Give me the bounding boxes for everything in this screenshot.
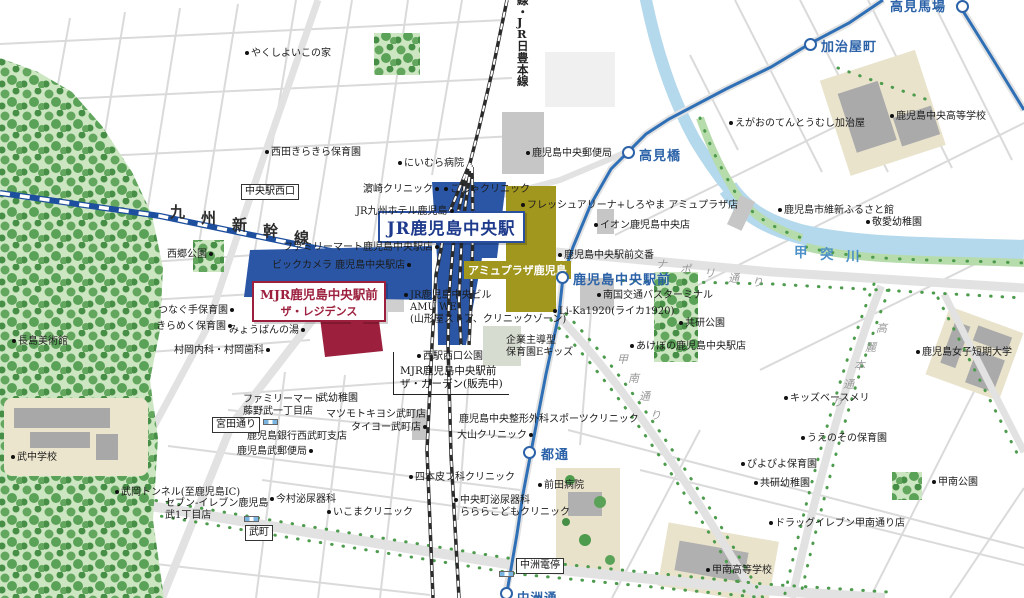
poi-label: JR九州ホテル鹿児島 bbox=[356, 206, 456, 218]
poi-dot bbox=[301, 328, 305, 332]
poi-dot bbox=[398, 161, 402, 165]
tram-stop-label: 高見橋 bbox=[639, 145, 681, 164]
tram-stop-circle bbox=[804, 38, 817, 51]
poi-dot bbox=[423, 425, 427, 429]
poi-dot bbox=[417, 354, 421, 358]
poi-dot bbox=[729, 121, 733, 125]
tram-stop-circle bbox=[956, 0, 969, 13]
poi-dot bbox=[630, 344, 634, 348]
poi-dot bbox=[444, 187, 448, 191]
poi-label: 鹿児島中央整形外科スポーツクリニック bbox=[459, 414, 639, 426]
map-text-char: り bbox=[752, 274, 763, 290]
poi-label: 武幼稚園 bbox=[318, 393, 358, 405]
poi-label: JR鹿児島中央ビル AMU WE (山形屋ストア、クリニックゾーン) bbox=[402, 290, 566, 326]
poi-dot bbox=[529, 433, 533, 437]
poi-label: 四本皮フ科クリニック bbox=[407, 472, 515, 484]
traffic-signal-icon bbox=[244, 516, 259, 522]
intersection-label: 中央駅西口 bbox=[241, 184, 299, 200]
poi-dot bbox=[778, 208, 782, 212]
poi-dot bbox=[450, 209, 454, 213]
poi-label: いこまクリニック bbox=[325, 507, 413, 519]
map-text-char: ナ bbox=[656, 256, 667, 272]
poi-dot bbox=[266, 348, 270, 352]
poi-label: キッズベースメリ bbox=[782, 393, 870, 405]
map-text-char: 線 bbox=[294, 227, 309, 248]
map-text-char: 通 bbox=[843, 376, 854, 392]
poi-label: 企業主導型 保育園Eキッズ bbox=[506, 335, 573, 359]
poi-label: ぴよぴよ保育園 bbox=[739, 459, 817, 471]
poi-label: 武中学校 bbox=[9, 452, 57, 464]
poi-dot bbox=[916, 350, 920, 354]
poi-dot bbox=[538, 483, 542, 487]
poi-dot bbox=[11, 455, 15, 459]
poi-label: 濵崎クリニック bbox=[363, 184, 441, 196]
map-text-char: 本 bbox=[854, 357, 865, 373]
poi-label: タイヨー武町店 bbox=[351, 422, 429, 434]
map-text-char: り bbox=[650, 407, 661, 423]
poi-dot bbox=[309, 449, 313, 453]
poi-label: 大山クリニック bbox=[457, 430, 535, 442]
poi-label: 鹿児島女子短期大学 bbox=[914, 347, 1012, 359]
map-root: JR鹿児島中央駅 アミュプラザ鹿児島 MJR鹿児島中央駅前 ザ・レジデンス MJ… bbox=[0, 0, 1024, 598]
map-text-char: 甲 bbox=[794, 241, 808, 261]
poi-label: つなぐ手保育園 bbox=[158, 305, 236, 317]
mjr-residence-line1: MJR鹿児島中央駅前 bbox=[254, 284, 384, 303]
tram-stop-circle bbox=[523, 446, 536, 459]
poi-dot bbox=[890, 114, 894, 118]
poi-dot bbox=[245, 51, 249, 55]
poi-label: きらめく保育園 bbox=[156, 321, 234, 333]
poi-label: Li-Ka1920(ライカ1920) bbox=[551, 306, 674, 318]
tram-stop-circle bbox=[556, 271, 569, 284]
tram-stop-label: 高見馬場 bbox=[890, 0, 946, 15]
map-text-char: 川 bbox=[846, 245, 860, 265]
intersection-label: 宮田通り bbox=[212, 417, 260, 433]
poi-label: 西郷公園 bbox=[167, 249, 215, 261]
poi-dot bbox=[594, 223, 598, 227]
poi-label: 鹿児島中央高等学校 bbox=[888, 111, 986, 123]
map-text-char: 幹 bbox=[263, 220, 278, 241]
poi-dot bbox=[115, 490, 119, 494]
traffic-signal-icon bbox=[499, 571, 514, 577]
poi-label: 鹿児島武郵便局 bbox=[237, 446, 315, 458]
poi-dot bbox=[932, 480, 936, 484]
poi-label: 中央町泌尿器科 らららこどもクリニック bbox=[452, 495, 570, 519]
poi-label: 西駅西口公園 bbox=[415, 351, 483, 363]
map-text-char: 甲 bbox=[617, 351, 628, 367]
map-text-char: 南 bbox=[628, 370, 639, 386]
poi-label: 前田病院 bbox=[536, 480, 584, 492]
poi-label: 鹿児島中央駅前交番 bbox=[556, 250, 654, 262]
poi-label: 武岡トンネル(至鹿児島IC) bbox=[113, 487, 240, 499]
poi-dot bbox=[769, 521, 773, 525]
poi-label: 西田きらきら保育園 bbox=[263, 147, 361, 159]
labels-layer: JR鹿児島中央駅 アミュプラザ鹿児島 MJR鹿児島中央駅前 ザ・レジデンス MJ… bbox=[0, 0, 1024, 598]
poi-label: フレッシュアリーナ+しろやま アミュプラザ店 bbox=[519, 200, 738, 212]
poi-label: 甲南高等学校 bbox=[704, 565, 772, 577]
map-text-char: リ bbox=[704, 265, 715, 281]
poi-label: イオン鹿児島中央店 bbox=[592, 220, 690, 232]
intersection-label: 武町 bbox=[245, 525, 273, 541]
map-text-char: 通 bbox=[728, 270, 739, 286]
poi-label: 鹿児島中央郵便局 bbox=[524, 148, 612, 160]
poi-dot bbox=[784, 396, 788, 400]
map-text-char: り bbox=[832, 394, 843, 410]
poi-dot bbox=[801, 436, 805, 440]
poi-label: こしゃクリニック bbox=[442, 184, 530, 196]
amu-plaza-callout: アミュプラザ鹿児島 bbox=[464, 261, 571, 279]
poi-label: 共研幼稚園 bbox=[752, 478, 810, 490]
poi-label: うえのその保育園 bbox=[799, 433, 887, 445]
poi-label: 長島美術館 bbox=[10, 336, 68, 348]
map-text-char: 新 bbox=[232, 214, 247, 235]
map-text-char: ポ bbox=[680, 261, 691, 277]
poi-dot bbox=[209, 252, 213, 256]
map-text-char: 州 bbox=[201, 207, 216, 228]
poi-label: 今村泌尿器科 bbox=[268, 494, 336, 506]
poi-dot bbox=[866, 220, 870, 224]
poi-label: やくしよいこの家 bbox=[243, 48, 331, 60]
map-text-char: 麗 bbox=[865, 339, 876, 355]
tram-stop-label: 都通 bbox=[541, 444, 569, 463]
tram-stop-circle bbox=[500, 587, 513, 598]
map-text-char: 九 bbox=[170, 201, 185, 222]
poi-label: ドラッグイレブン甲南通り店 bbox=[767, 518, 905, 530]
poi-dot bbox=[435, 245, 439, 249]
traffic-signal-icon bbox=[263, 419, 278, 425]
poi-dot bbox=[327, 510, 331, 514]
poi-dot bbox=[12, 339, 16, 343]
poi-dot bbox=[230, 308, 234, 312]
poi-dot bbox=[407, 263, 411, 267]
poi-dot bbox=[741, 462, 745, 466]
poi-dot bbox=[404, 293, 408, 297]
poi-dot bbox=[679, 321, 683, 325]
poi-label: にいむら病院 bbox=[396, 158, 464, 170]
mjr-residence-callout: MJR鹿児島中央駅前 ザ・レジデンス bbox=[252, 281, 386, 322]
poi-dot bbox=[435, 187, 439, 191]
poi-label: マツモトキヨシ武町店 bbox=[326, 409, 426, 421]
poi-dot bbox=[597, 293, 601, 297]
map-text-char: 高 bbox=[876, 320, 887, 336]
poi-dot bbox=[706, 568, 710, 572]
poi-dot bbox=[754, 481, 758, 485]
poi-label: 甲南公園 bbox=[930, 477, 978, 489]
poi-label: 南国交通バスターミナル bbox=[595, 290, 713, 302]
poi-label: 村岡内科・村岡歯科 bbox=[174, 345, 272, 357]
poi-label: ファミリーマート 藤野武一丁目店 bbox=[243, 394, 323, 418]
poi-dot bbox=[526, 151, 530, 155]
poi-dot bbox=[270, 497, 274, 501]
poi-label: ビックカメラ 鹿児島中央駅店 bbox=[272, 260, 413, 272]
poi-dot bbox=[409, 475, 413, 479]
tram-stop-circle bbox=[622, 146, 635, 159]
map-text-char: 突 bbox=[820, 243, 834, 263]
poi-dot bbox=[454, 498, 458, 502]
intersection-label: 中洲電停 bbox=[516, 558, 564, 574]
poi-dot bbox=[521, 203, 525, 207]
poi-label: みょうばんの湯 bbox=[229, 325, 307, 337]
map-text-char: 通 bbox=[639, 388, 650, 404]
map-text-char: 線 bbox=[517, 73, 529, 89]
poi-dot bbox=[265, 150, 269, 154]
poi-label: 鹿児島銀行西武町支店 bbox=[247, 431, 347, 443]
poi-label: 敬愛幼稚園 bbox=[864, 217, 922, 229]
poi-label: あけぼの鹿児島中央駅店 bbox=[628, 341, 746, 353]
mjr-callout-pointer bbox=[350, 320, 366, 333]
poi-label: 鹿児島市維新ふるさと館 bbox=[776, 205, 894, 217]
tram-stop-label: 中洲通 bbox=[517, 587, 558, 598]
tram-stop-label: 加治屋町 bbox=[821, 36, 877, 55]
mjr-residence-line2: ザ・レジデンス bbox=[254, 303, 384, 319]
poi-label: 共研公園 bbox=[677, 318, 725, 330]
poi-label: えがおのてんとうむし加治屋 bbox=[727, 118, 865, 130]
poi-dot bbox=[558, 253, 562, 257]
